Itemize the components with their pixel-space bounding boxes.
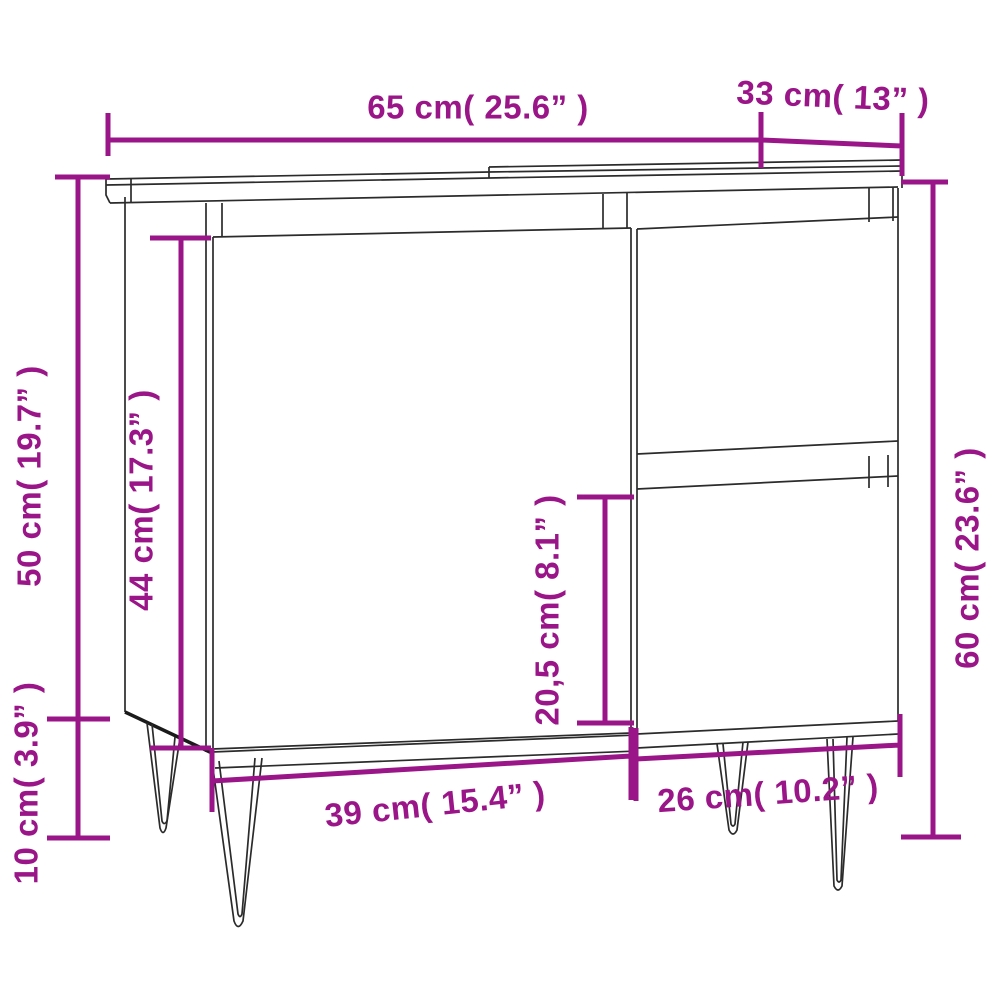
furniture-dimension-diagram: 65 cm( 25.6” ) 33 cm( 13” ) 50 cm( 19.7”… bbox=[0, 0, 1000, 1000]
cabinet-door bbox=[212, 228, 631, 750]
dimension-drawer-height: 20,5 cm( 8.1” ) bbox=[529, 494, 635, 725]
cabinet-drawers bbox=[637, 188, 898, 735]
leg-front-right bbox=[827, 737, 853, 890]
leg-back-left bbox=[147, 723, 180, 833]
dim-label-total-height: 60 cm( 23.6” ) bbox=[949, 447, 986, 669]
dimension-upper-height: 50 cm( 19.7” ) bbox=[11, 177, 111, 719]
leg-front-left bbox=[212, 758, 262, 927]
dimension-door-height: 44 cm( 17.3” ) bbox=[123, 238, 212, 748]
diagram-canvas: 65 cm( 25.6” ) 33 cm( 13” ) 50 cm( 19.7”… bbox=[0, 0, 1000, 1000]
dim-label-door-height: 44 cm( 17.3” ) bbox=[123, 389, 160, 611]
dimension-total-height: 60 cm( 23.6” ) bbox=[901, 182, 986, 837]
dim-label-door-width: 39 cm( 15.4” ) bbox=[323, 774, 547, 834]
dimension-drawer-width: 26 cm( 10.2” ) bbox=[636, 714, 900, 819]
dimension-top-width: 65 cm( 25.6” ) bbox=[108, 89, 761, 157]
dim-label-drawer-width: 26 cm( 10.2” ) bbox=[656, 767, 880, 819]
dim-label-leg-height: 10 cm( 3.9” ) bbox=[8, 682, 45, 885]
dimension-leg-height: 10 cm( 3.9” ) bbox=[8, 682, 111, 885]
dim-label-top-width: 65 cm( 25.6” ) bbox=[367, 89, 589, 126]
dim-label-upper-height: 50 cm( 19.7” ) bbox=[11, 365, 48, 587]
dim-label-top-depth: 33 cm( 13” ) bbox=[736, 73, 931, 118]
cabinet-top-panel bbox=[106, 160, 902, 203]
dim-label-drawer-height: 20,5 cm( 8.1” ) bbox=[529, 494, 566, 725]
